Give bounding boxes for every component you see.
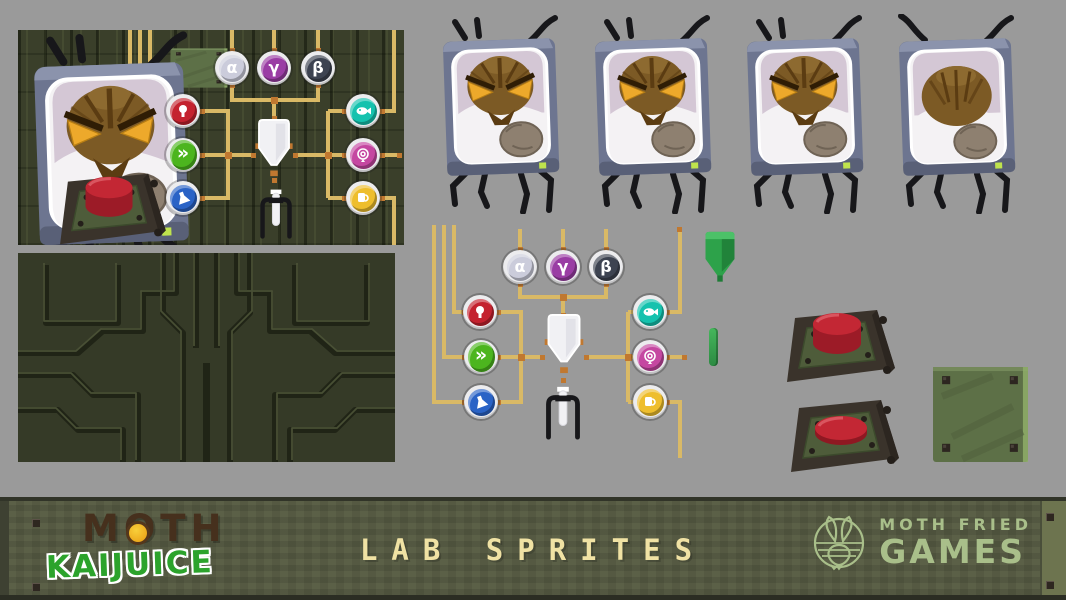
alpha-glyph: α bbox=[219, 55, 246, 82]
sprite-sheet: α γ β » bbox=[0, 0, 1066, 600]
bulb-icon bbox=[463, 295, 497, 329]
screw-icon bbox=[1046, 513, 1054, 521]
lab-scene-panel: α γ β » bbox=[18, 30, 404, 245]
alpha-icon: α bbox=[503, 250, 537, 284]
moth-emblem-icon bbox=[811, 515, 867, 571]
beta-icon: β bbox=[589, 250, 623, 284]
rose-icon bbox=[633, 340, 667, 374]
beta-glyph: β bbox=[305, 55, 332, 82]
funnel-bag-sprite bbox=[544, 313, 584, 375]
red-button-pressed-sprite bbox=[777, 388, 907, 484]
cup-icon bbox=[633, 385, 667, 419]
red-button-sprite bbox=[46, 162, 174, 245]
studio-name-line2: GAMES bbox=[879, 535, 1026, 570]
moth-monitor-sprite bbox=[424, 14, 576, 214]
red-button-up-sprite bbox=[773, 298, 903, 394]
rose-icon bbox=[346, 138, 380, 172]
flask-icon bbox=[464, 385, 498, 419]
moth-monitor-sprite bbox=[576, 14, 728, 214]
bulb-icon bbox=[166, 94, 200, 128]
cup-icon bbox=[346, 181, 380, 215]
green-rod-sprite bbox=[709, 328, 718, 366]
gamma-glyph: γ bbox=[261, 55, 288, 82]
circuit-texture bbox=[18, 253, 395, 462]
icon-diagram: α γ β » bbox=[430, 225, 730, 460]
beta-icon: β bbox=[301, 51, 335, 85]
funnel-bag-sprite bbox=[255, 118, 293, 178]
gamma-icon: γ bbox=[257, 51, 291, 85]
alpha-icon: α bbox=[215, 51, 249, 85]
footer-banner: MOTH KAIJUICE LAB SPRITES MOTH FRIED GAM… bbox=[0, 497, 1066, 600]
alpha-glyph: α bbox=[507, 254, 534, 281]
gamma-glyph: γ bbox=[550, 254, 577, 281]
fast-forward-icon: » bbox=[464, 340, 498, 374]
moth-monitor-head-down-sprite bbox=[880, 14, 1032, 214]
moth-monitor-sprite bbox=[728, 14, 880, 214]
circuit-texture-panel bbox=[18, 253, 395, 462]
fish-icon bbox=[346, 94, 380, 128]
test-tube-sprite bbox=[256, 186, 296, 240]
green-plate-sprite bbox=[932, 366, 1029, 463]
screw-icon bbox=[1046, 581, 1054, 589]
fish-icon bbox=[633, 295, 667, 329]
gamma-icon: γ bbox=[546, 250, 580, 284]
green-funnel-sprite bbox=[700, 230, 740, 288]
flask-icon bbox=[166, 181, 200, 215]
fast-forward-icon: » bbox=[166, 138, 200, 172]
test-tube-sprite bbox=[541, 383, 585, 441]
moth-fried-games-logo: MOTH FRIED GAMES bbox=[811, 515, 1032, 571]
beta-glyph: β bbox=[593, 254, 620, 281]
